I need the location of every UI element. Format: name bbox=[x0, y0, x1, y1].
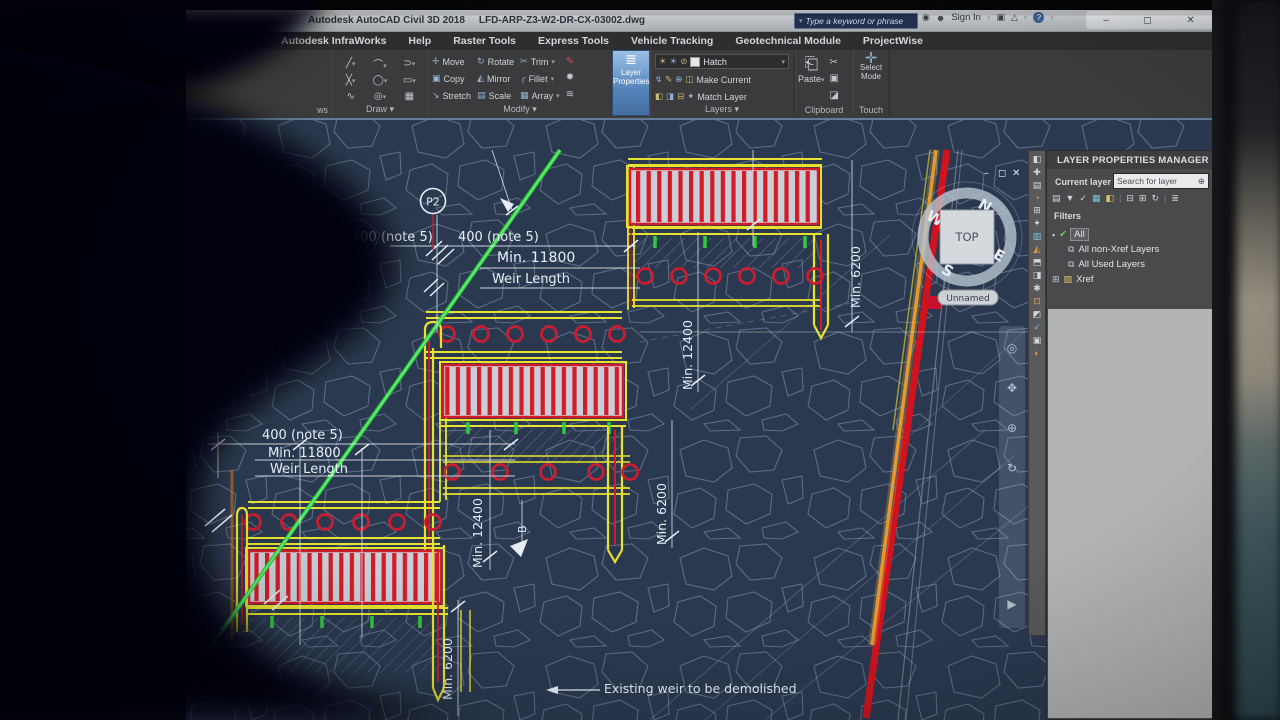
new-layer-icon[interactable]: ▦ bbox=[1092, 193, 1101, 204]
scale-button[interactable]: ▤Scale bbox=[477, 87, 514, 104]
layer-properties-manager-panel: LAYER PROPERTIES MANAGER Current layer S… bbox=[1046, 150, 1216, 720]
viewport-close-icon: ✕ bbox=[1012, 168, 1020, 179]
tree-item-non-xref[interactable]: ⧉ All non-Xref Layers bbox=[1052, 242, 1210, 257]
tree-item-all[interactable]: ▪ ✔ All bbox=[1052, 227, 1210, 242]
layer-tool-icon[interactable]: ⊕ bbox=[675, 74, 682, 85]
rectangle-icon[interactable]: ▭▾ bbox=[403, 75, 416, 86]
svg-text:Existing weir to be demolished: Existing weir to be demolished bbox=[604, 681, 797, 696]
erase-icon[interactable]: ✎ bbox=[566, 56, 574, 67]
layer-freeze-icon[interactable]: ☀ bbox=[670, 56, 678, 67]
document-filename: LFD-ARP-Z3-W2-DR-CX-03002.dwg bbox=[479, 15, 645, 26]
docked-toolbar-strip[interactable]: ◧✚ ▤◔ ⊞✦ ▥◭ ⬒◨ ✱⊡ ◩✓ ▣◐ bbox=[1028, 150, 1046, 636]
infocenter-search-input[interactable]: ▾ Type a keyword or phrase bbox=[794, 13, 918, 29]
fillet-button[interactable]: ╭Fillet▾ bbox=[520, 70, 560, 87]
explode-icon[interactable]: ✸ bbox=[566, 72, 574, 83]
trim-button[interactable]: ✂Trim▾ bbox=[520, 53, 560, 70]
draw-panel-label[interactable]: Draw ▾ bbox=[332, 104, 428, 115]
viewport-name-button[interactable]: Unnamed bbox=[938, 290, 998, 305]
select-mode-icon[interactable]: ✛ bbox=[853, 54, 889, 63]
tool-icon[interactable]: ✱ bbox=[1033, 283, 1041, 294]
tab-vehicle-tracking[interactable]: Vehicle Tracking bbox=[620, 35, 724, 47]
tab-raster-tools[interactable]: Raster Tools bbox=[442, 35, 527, 47]
tool-icon[interactable]: ✓ bbox=[1033, 322, 1041, 333]
xline-icon[interactable]: ╳▾ bbox=[346, 75, 356, 86]
blurred-room-background bbox=[1236, 0, 1280, 720]
layer-tool-icon[interactable]: ◧ bbox=[655, 91, 663, 102]
tool-icon[interactable]: ⬒ bbox=[1033, 257, 1042, 268]
navigation-bar[interactable]: ◎ ✥ ⊕ ↻ ▶ bbox=[999, 326, 1025, 628]
layer-filter-icon: ⧉ bbox=[1068, 259, 1074, 270]
chevron-down-icon[interactable]: ▾ bbox=[987, 14, 991, 22]
separator: | bbox=[1119, 193, 1121, 204]
match-properties-icon[interactable]: ◪ bbox=[830, 90, 839, 101]
tree-item-used[interactable]: ⧉ All Used Layers bbox=[1052, 257, 1210, 272]
search-icon[interactable]: ◉ bbox=[922, 12, 930, 23]
copy-button[interactable]: ▣Copy bbox=[432, 70, 471, 87]
touch-panel-label: Touch bbox=[853, 105, 889, 115]
chevron-down-icon[interactable]: ▾ bbox=[1050, 14, 1054, 22]
new-group-filter-icon[interactable]: ▼ bbox=[1066, 193, 1075, 204]
zoom-icon: ⊕ bbox=[1007, 421, 1017, 435]
line-icon[interactable]: ╱▾ bbox=[346, 58, 356, 69]
paste-icon: ⎗ bbox=[798, 54, 825, 74]
lpm-panel-title: LAYER PROPERTIES MANAGER bbox=[1047, 151, 1215, 169]
help-icon[interactable]: ? bbox=[1033, 12, 1044, 23]
touch-panel: ✛ Select Mode Touch bbox=[853, 50, 890, 116]
tab-infraworks[interactable]: Autodesk InfraWorks bbox=[270, 35, 397, 47]
layer-color-swatch[interactable] bbox=[690, 57, 700, 67]
polyline-icon[interactable]: ⊃▾ bbox=[403, 58, 415, 69]
layer-tool-icon[interactable]: ⊟ bbox=[677, 91, 684, 102]
tool-icon[interactable]: ◨ bbox=[1033, 270, 1042, 281]
layer-search-input[interactable]: Search for layer ⊕ bbox=[1113, 173, 1209, 189]
cut-icon[interactable]: ✂ bbox=[830, 57, 839, 68]
orbit-icon: ↻ bbox=[1007, 461, 1017, 475]
layers-icon: ≣ bbox=[613, 55, 649, 64]
dim-text: Min. 12400 bbox=[470, 498, 485, 568]
tab-express-tools[interactable]: Express Tools bbox=[527, 35, 620, 47]
close-button[interactable]: ✕ bbox=[1186, 15, 1194, 26]
match-layer-button[interactable]: Match Layer bbox=[697, 92, 747, 102]
tool-icon[interactable]: ◩ bbox=[1033, 309, 1042, 320]
move-button[interactable]: ✛Move bbox=[432, 53, 471, 70]
refresh-icon[interactable]: ↻ bbox=[1151, 193, 1159, 204]
layer-properties-button[interactable]: ≣ Layer Properties bbox=[612, 50, 650, 116]
user-icon: ☻ bbox=[936, 13, 945, 23]
copy-clip-icon[interactable]: ▣ bbox=[830, 73, 839, 84]
dim-text: Min. 6200 bbox=[848, 246, 863, 308]
minimize-button[interactable]: – bbox=[1103, 15, 1109, 26]
pan-icon: ✥ bbox=[1007, 381, 1017, 395]
modify-panel-label[interactable]: Modify ▾ bbox=[428, 104, 612, 115]
spline-icon[interactable]: ∿ bbox=[346, 91, 354, 102]
draw-panel: ╱▾ ⌒▾ ⊃▾ ╳▾ ◯▾ ▭▾ ∿ ◎▾ ▦ Draw ▾ bbox=[332, 50, 429, 116]
hatch-icon[interactable]: ▦ bbox=[405, 91, 414, 102]
new-layer-vp-icon[interactable]: ◧ bbox=[1106, 193, 1115, 204]
mirror-button[interactable]: ◭Mirror bbox=[477, 70, 514, 87]
dim-text: 400 (note 5) bbox=[458, 230, 539, 245]
viewport-restore-icon: ◻ bbox=[998, 168, 1006, 179]
folder-icon: ▨ bbox=[1064, 274, 1073, 285]
alert-icon[interactable]: △ bbox=[1011, 12, 1018, 23]
dim-text: 400 (note 5) bbox=[262, 428, 343, 443]
dim-text: Weir Length bbox=[492, 272, 570, 287]
separator: | bbox=[1164, 193, 1166, 204]
check-icon: ✔ bbox=[1059, 229, 1067, 240]
dim-text: 400 (note 5) bbox=[352, 230, 433, 245]
tab-geotechnical-module[interactable]: Geotechnical Module bbox=[724, 35, 852, 47]
layers-panel-label[interactable]: Layers ▾ bbox=[650, 104, 794, 115]
layer-states-icon[interactable]: ✓ bbox=[1079, 193, 1087, 204]
partial-panel: ws bbox=[186, 50, 333, 116]
modify-panel: ✛Move ▣Copy ↘Stretch ↻Rotate ◭Mirror ▤Sc… bbox=[428, 50, 613, 116]
chevron-down-icon[interactable]: ▾ bbox=[1024, 14, 1028, 22]
layers-panel: ☀ ☀ ⊘ Hatch ▾ ↯ ✎ ⊕ ◫ Make Current ◧ ◨ bbox=[650, 50, 795, 116]
ellipse-icon[interactable]: ◎▾ bbox=[374, 91, 386, 102]
tab-help[interactable]: Help bbox=[397, 35, 442, 47]
viewport-minimize-icon: – bbox=[984, 168, 989, 179]
chevron-down-icon[interactable]: ▾ bbox=[781, 58, 785, 66]
tool-icon[interactable]: ◐ bbox=[1034, 348, 1039, 358]
layer-list-area[interactable] bbox=[1048, 309, 1214, 718]
app-store-icon[interactable]: ▣ bbox=[996, 12, 1005, 23]
svg-text:B: B bbox=[516, 525, 529, 533]
stretch-button[interactable]: ↘Stretch bbox=[432, 87, 471, 104]
svg-text:TOP: TOP bbox=[954, 230, 978, 244]
layer-combo[interactable]: ☀ ☀ ⊘ Hatch ▾ bbox=[655, 54, 789, 69]
steering-wheel-icon: ◎ bbox=[1007, 341, 1017, 355]
circle-icon[interactable]: ◯▾ bbox=[373, 75, 388, 86]
set-current-icon[interactable]: ⊞ bbox=[1139, 193, 1147, 204]
app-title: Autodesk AutoCAD Civil 3D 2018 bbox=[308, 15, 465, 26]
make-current-button[interactable]: Make Current bbox=[696, 75, 751, 85]
layer-filter-tree: ▪ ✔ All ⧉ All non-Xref Layers ⧉ All Used… bbox=[1052, 227, 1210, 287]
tab-projectwise[interactable]: ProjectWise bbox=[852, 35, 934, 47]
dim-text: Weir Length bbox=[270, 462, 348, 477]
tool-icon[interactable]: ✚ bbox=[1033, 167, 1041, 178]
dim-text: Min. 6200 bbox=[654, 483, 669, 545]
current-layer-label: Current layer bbox=[1055, 177, 1111, 187]
expand-icon[interactable]: ⊞ bbox=[1052, 274, 1060, 285]
restore-button[interactable]: ◻ bbox=[1143, 15, 1151, 26]
showmotion-icon: ▶ bbox=[1007, 597, 1017, 611]
layer-tool-icon[interactable]: ↯ bbox=[655, 74, 662, 85]
layer-on-icon[interactable]: ☀ bbox=[659, 56, 667, 67]
sign-in-button[interactable]: Sign In bbox=[951, 12, 981, 23]
filters-label: Filters bbox=[1054, 211, 1081, 221]
select-mode-button[interactable]: Select Mode bbox=[853, 63, 889, 81]
svg-text:Unnamed: Unnamed bbox=[946, 294, 990, 304]
search-icon: ⊕ bbox=[1198, 176, 1205, 187]
new-property-filter-icon[interactable]: ▤ bbox=[1052, 193, 1061, 204]
layer-lock-icon[interactable]: ⊘ bbox=[680, 56, 687, 67]
monitor-top-bezel bbox=[0, 0, 1280, 10]
tool-icon[interactable]: ⊞ bbox=[1033, 205, 1041, 216]
collapse-icon[interactable]: ▪ bbox=[1052, 230, 1055, 240]
svg-text:P2: P2 bbox=[426, 196, 440, 209]
layer-filter-icon: ⧉ bbox=[1068, 244, 1074, 255]
arc-icon[interactable]: ⌒▾ bbox=[373, 56, 387, 71]
chevron-down-icon[interactable]: ▾ bbox=[799, 17, 803, 25]
clipboard-panel-label: Clipboard bbox=[795, 105, 853, 115]
dim-text: Min. 11800 bbox=[268, 446, 341, 461]
delete-layer-icon[interactable]: ⊟ bbox=[1126, 193, 1134, 204]
tool-icon[interactable]: ◧ bbox=[1033, 154, 1042, 165]
tool-icon[interactable]: ▥ bbox=[1033, 231, 1042, 242]
settings-icon[interactable]: ≣ bbox=[1171, 193, 1179, 204]
tool-icon[interactable]: ◭ bbox=[1034, 244, 1041, 255]
dim-text: Min. 6200 bbox=[440, 638, 455, 700]
dim-text: Min. 12400 bbox=[680, 320, 695, 390]
tree-item-xref[interactable]: ⊞ ▨ Xref bbox=[1052, 272, 1210, 287]
lpm-toolbar[interactable]: ▤ ▼ ✓ ▦ ◧ | ⊟ ⊞ ↻ | ≣ bbox=[1052, 193, 1212, 204]
layer-tool-icon[interactable]: ◨ bbox=[666, 91, 674, 102]
tool-icon[interactable]: ▣ bbox=[1033, 335, 1042, 346]
tool-icon[interactable]: ✦ bbox=[1033, 218, 1041, 229]
clipboard-panel: ⎗ Paste▾ ✂ ▣ ◪ Clipboard bbox=[795, 50, 854, 116]
tool-icon[interactable]: ◔ bbox=[1034, 193, 1039, 203]
layer-tool-icon[interactable]: ✎ bbox=[665, 74, 672, 85]
dim-text: Min. 11800 bbox=[497, 250, 575, 266]
offset-icon[interactable]: ≋ bbox=[566, 89, 574, 100]
ribbon-tab-bar: Autodesk InfraWorks Help Raster Tools Ex… bbox=[186, 31, 1216, 50]
tool-icon[interactable]: ⊡ bbox=[1033, 296, 1041, 307]
tool-icon[interactable]: ▤ bbox=[1033, 180, 1042, 191]
rotate-button[interactable]: ↻Rotate bbox=[477, 53, 514, 70]
layer-tool-icon[interactable]: ◫ bbox=[685, 74, 693, 85]
infocenter-toolbar: ◉ ☻ Sign In ▾ ▣ △ ▾ ? ▾ bbox=[922, 12, 1054, 23]
photo-of-monitor: P2 400 (note 5) 400 (note 5) Min. 11800 … bbox=[0, 0, 1280, 720]
window-controls: – ◻ ✕ bbox=[1086, 11, 1212, 29]
layer-tool-icon[interactable]: ✦ bbox=[687, 91, 694, 102]
title-bar: Autodesk AutoCAD Civil 3D 2018 LFD-ARP-Z… bbox=[186, 10, 1216, 32]
ribbon: ws ╱▾ ⌒▾ ⊃▾ ╳▾ ◯▾ ▭▾ ∿ ◎▾ ▦ Draw ▾ ✛Move… bbox=[186, 50, 1216, 120]
array-button[interactable]: ▦Array▾ bbox=[520, 87, 560, 104]
paste-button[interactable]: ⎗ Paste▾ bbox=[798, 54, 825, 104]
